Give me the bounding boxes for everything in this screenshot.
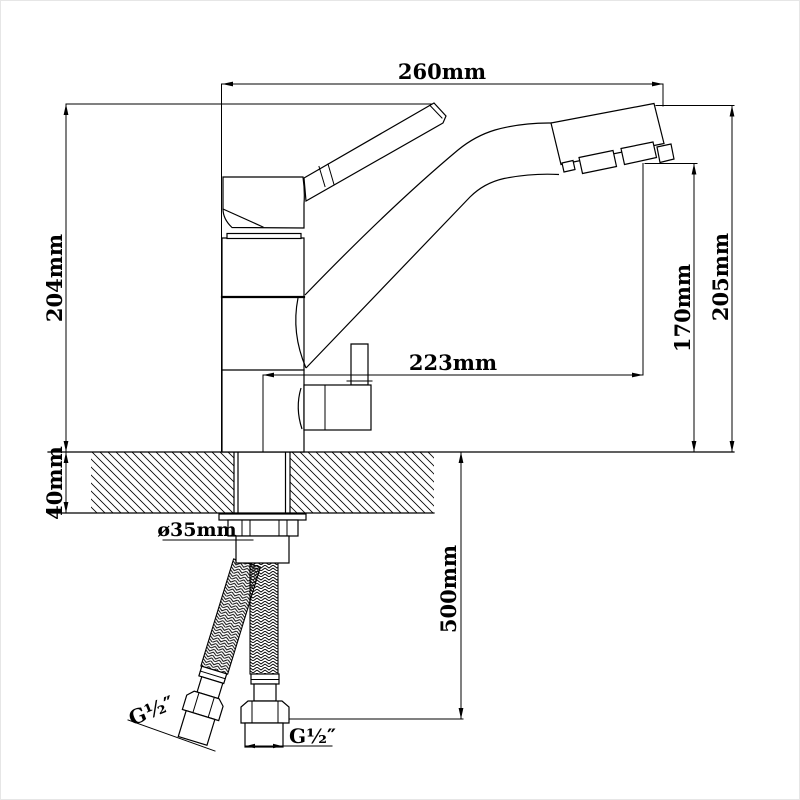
dim-label-223: 223mm [409, 350, 497, 375]
braided-hose [250, 563, 278, 674]
shank-tube-lines [234, 452, 290, 514]
dim-label-40: 40mm [42, 446, 67, 520]
body-collar [227, 234, 301, 239]
faucet-technical-drawing: 260mm 204mm 40mm 205mm 170mm 223mm [0, 0, 800, 800]
spout-nose-piece [657, 144, 674, 163]
dim-label-205: 205mm [708, 233, 733, 321]
dim-170: 170mm [645, 164, 697, 453]
drawing-canvas: 260mm 204mm 40mm 205mm 170mm 223mm [1, 1, 800, 800]
outlet-valve-box [304, 385, 371, 430]
dim-label-thread-angled: G½″ [125, 691, 178, 731]
faucet-handle [304, 103, 446, 201]
countertop-hatch-right [290, 453, 434, 513]
outlet-lever-cylinder [351, 344, 368, 385]
hose-tube [254, 684, 276, 701]
dim-label-204: 204mm [42, 234, 67, 322]
spout-lower-edge [306, 174, 559, 368]
dim-label-thread-straight: G½″ [289, 724, 336, 748]
filter-outlet [298, 344, 372, 430]
hose-hex-nut [241, 701, 289, 723]
dim-label-500: 500mm [436, 545, 461, 633]
countertop-section [48, 452, 734, 513]
dim-204: 204mm [42, 104, 68, 452]
dim-label-hole: ø35mm [157, 519, 236, 541]
aerator-notch [562, 161, 575, 173]
dim-label-260: 260mm [398, 59, 486, 84]
countertop-hatch-left [91, 453, 234, 513]
handle-cap [223, 177, 304, 228]
hose-thread-pipe [245, 723, 283, 747]
spout-upper-edge [305, 123, 552, 295]
dim-40: 40mm [42, 446, 91, 520]
faucet-body [222, 177, 306, 452]
dim-label-170: 170mm [670, 264, 695, 352]
